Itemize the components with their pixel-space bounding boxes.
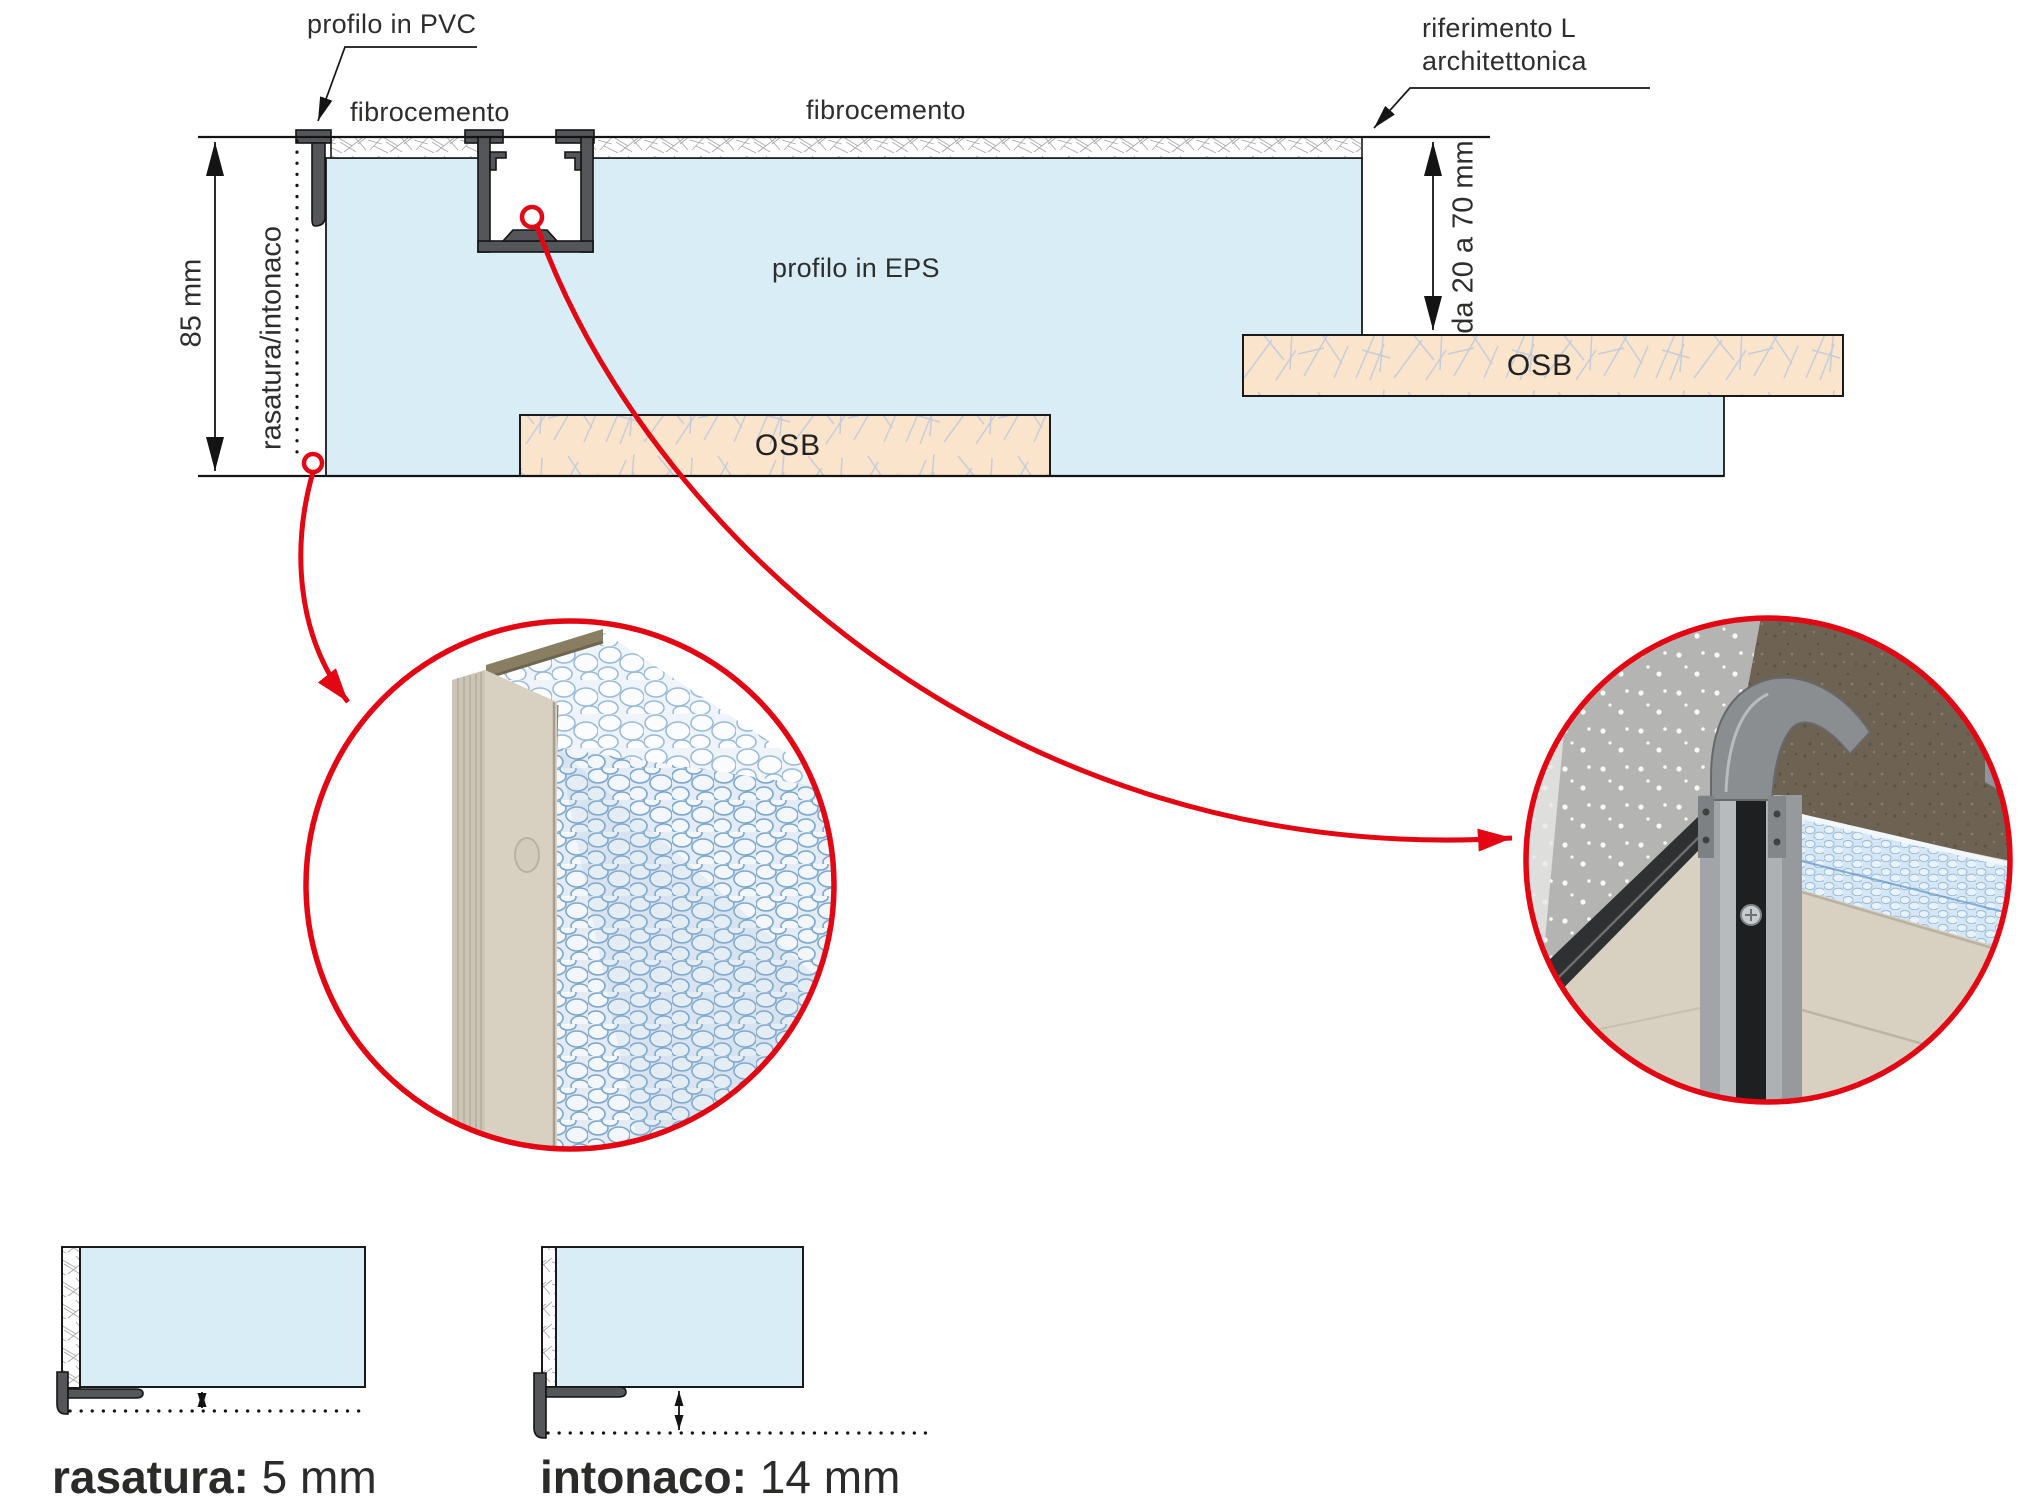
rasatura-term: rasatura: [52, 1451, 249, 1502]
label-fibrocemento-right: fibrocemento [806, 94, 966, 126]
metal-plate [1985, 688, 2016, 800]
corner-channel-profile [1700, 795, 1802, 1110]
pvc-channel-profile [465, 130, 594, 252]
label-rasatura: rasatura: 5 mm [52, 1450, 377, 1502]
intonaco-value: 14 mm [760, 1451, 901, 1502]
intonaco-term: intonaco: [540, 1451, 747, 1502]
fibrocemento-strip-left [331, 137, 478, 158]
rasatura-detail-diagram [57, 1247, 367, 1414]
intonaco-detail-diagram [534, 1247, 935, 1438]
dimension-20-70-text: da 20 a 70 mm [1448, 140, 1481, 333]
label-profilo-pvc: profilo in PVC [307, 8, 476, 40]
label-osb-bottom: OSB [755, 429, 821, 463]
leader-riferimento [1374, 88, 1650, 128]
callout-marker-edge [304, 454, 322, 472]
label-riferimento: riferimento L architettonica [1422, 12, 1587, 78]
label-osb-right: OSB [1507, 349, 1573, 383]
label-intonaco: intonaco: 14 mm [540, 1450, 900, 1502]
label-fibrocemento-left: fibrocemento [350, 96, 510, 128]
snap-button [515, 838, 539, 872]
technical-diagram-canvas [0, 0, 2025, 1502]
label-profilo-eps: profilo in EPS [772, 252, 940, 284]
rasatura-value: 5 mm [262, 1451, 377, 1502]
label-riferimento-line2: architettonica [1422, 45, 1587, 78]
pvc-profile-face [485, 670, 557, 1155]
fibrocemento-strip-right [593, 137, 1362, 158]
pvc-profile-ribbed-edge [452, 670, 485, 1155]
callout-marker-channel [522, 207, 542, 227]
dimension-85mm-text: 85 mm [176, 259, 209, 348]
detail-photo-corner-installed [1520, 600, 2020, 1110]
detail-photo-eps-pvc [306, 621, 843, 1155]
pvc-edge-profile [296, 130, 331, 226]
construction-detail-page: profilo in PVC fibrocemento fibrocemento… [0, 0, 2025, 1502]
callout-arrow-to-left-photo [301, 472, 348, 702]
finish-note-text: rasatura/intonaco [256, 226, 289, 450]
label-riferimento-line1: riferimento L [1422, 12, 1587, 45]
